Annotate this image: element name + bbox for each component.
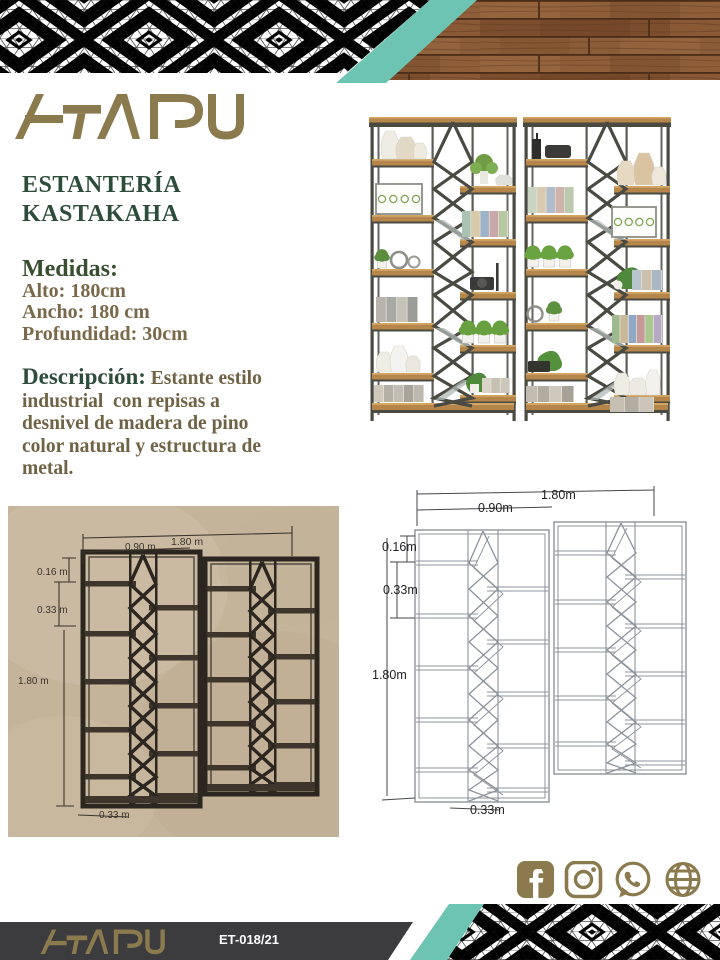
svg-text:0.16m: 0.16m	[382, 540, 417, 554]
svg-text:1.80 m: 1.80 m	[171, 536, 203, 548]
svg-text:0.33m: 0.33m	[470, 803, 505, 817]
svg-text:0.33m: 0.33m	[383, 583, 418, 597]
svg-text:1.80m: 1.80m	[372, 668, 407, 682]
svg-text:1.80 m: 1.80 m	[18, 676, 49, 687]
svg-text:0.90 m: 0.90 m	[125, 542, 156, 553]
svg-text:0.33 m: 0.33 m	[37, 605, 68, 616]
svg-text:0.33 m: 0.33 m	[99, 810, 130, 821]
svg-text:1.80m: 1.80m	[541, 488, 576, 502]
svg-text:0.90m: 0.90m	[478, 501, 513, 515]
svg-text:0.16 m: 0.16 m	[37, 567, 68, 578]
